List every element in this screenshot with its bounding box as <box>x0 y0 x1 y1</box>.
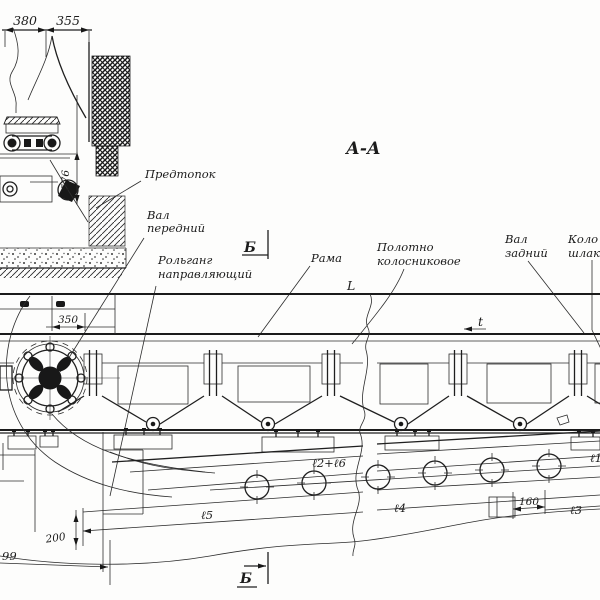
marker-b-bottom-text: Б <box>239 571 252 587</box>
tensioner-bracket <box>489 497 515 517</box>
label-slag-2: шлак <box>568 246 600 260</box>
section-title-text: А-А <box>344 139 381 159</box>
dim-355: 355 <box>56 13 80 28</box>
label-rear-shaft-1: Вал <box>504 232 528 246</box>
label-frame: Рама <box>310 251 342 265</box>
drawing-canvas: 380 355 <box>0 0 600 600</box>
dim-200: 200 <box>44 531 67 546</box>
dim-L: L <box>346 278 355 293</box>
marker-b-top-text: Б <box>243 240 256 256</box>
dim-t: t <box>478 314 484 329</box>
grate-panels <box>0 350 600 431</box>
label-predtopok: Предтопок <box>144 167 216 181</box>
section-title: А-А <box>344 139 381 159</box>
dim-letter-L: L <box>346 278 355 293</box>
dim-letter-t: t <box>464 314 486 332</box>
label-rollgang-2: направляющий <box>158 267 252 281</box>
dim-99: 99 <box>2 549 17 563</box>
grate-post <box>84 350 587 396</box>
bottom-frame-lines <box>0 432 143 572</box>
label-grate-belt-1: Полотно <box>376 240 434 254</box>
plate <box>40 429 58 447</box>
label-grate-belt-2: колосниковое <box>377 254 461 268</box>
dim-160: 160 <box>519 496 539 508</box>
roller <box>475 453 509 487</box>
bottom-bolted-plates <box>8 428 600 452</box>
front-drive-linkage <box>0 160 88 222</box>
label-front-shaft-2: передний <box>147 221 205 235</box>
dimension-l1: ℓ1 <box>590 451 600 465</box>
v-bracing <box>58 396 600 431</box>
label-rollgang-1: Рольганг <box>157 253 212 267</box>
dimension-200: 200 <box>44 510 79 550</box>
dimension-l2l6: ℓ2+ℓ6 <box>312 456 346 470</box>
section-marker-b-top: Б <box>242 230 268 259</box>
label-slag-1: Коло <box>567 232 598 246</box>
floor-slab <box>0 248 126 278</box>
label-front-shaft-1: Вал <box>146 208 170 222</box>
roller <box>418 456 452 490</box>
dim-380: 380 <box>13 13 37 28</box>
dim-l2l6: ℓ2+ℓ6 <box>312 456 346 470</box>
section-marker-b-bottom: Б <box>237 552 268 587</box>
plate <box>8 429 36 449</box>
dim-350: 350 <box>58 314 78 326</box>
coal-feeder <box>0 117 76 158</box>
label-rear-shaft-2: задний <box>505 246 548 260</box>
roller <box>532 449 566 483</box>
support-rollers <box>240 449 566 504</box>
front-shaft-sprocket <box>0 336 120 420</box>
dim-l5: ℓ5 <box>201 508 213 522</box>
dim-l1: ℓ1 <box>590 451 600 465</box>
brick-wall-hatch <box>89 56 130 246</box>
coal-hopper <box>10 28 89 150</box>
engineering-drawing-grate-conveyor: 380 355 <box>0 0 600 600</box>
plate <box>385 429 439 450</box>
dim-l4: ℓ4 <box>394 501 406 515</box>
callout-labels: Предтопок Вал передний Рольганг направля… <box>60 167 600 496</box>
dim-576: 576 <box>60 170 72 190</box>
